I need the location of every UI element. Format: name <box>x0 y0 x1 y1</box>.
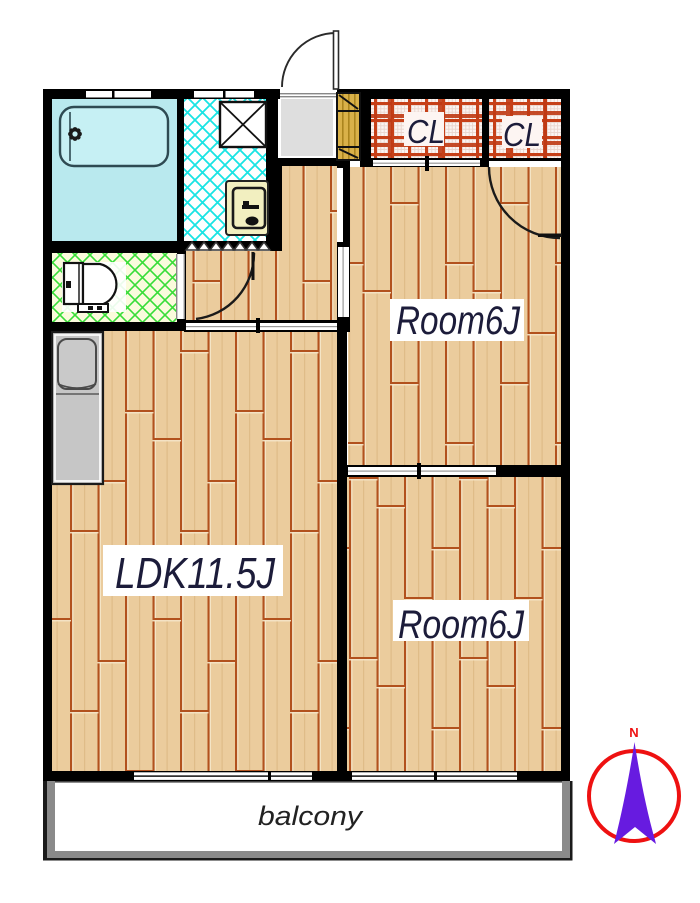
svg-text:Room6J: Room6J <box>398 603 525 647</box>
svg-text:balcony: balcony <box>258 801 364 831</box>
svg-text:CL: CL <box>407 113 445 150</box>
svg-text:CL: CL <box>503 116 541 153</box>
svg-text:LDK11.5J: LDK11.5J <box>115 549 276 598</box>
svg-text:N: N <box>629 725 638 740</box>
svg-text:Room6J: Room6J <box>396 299 521 343</box>
